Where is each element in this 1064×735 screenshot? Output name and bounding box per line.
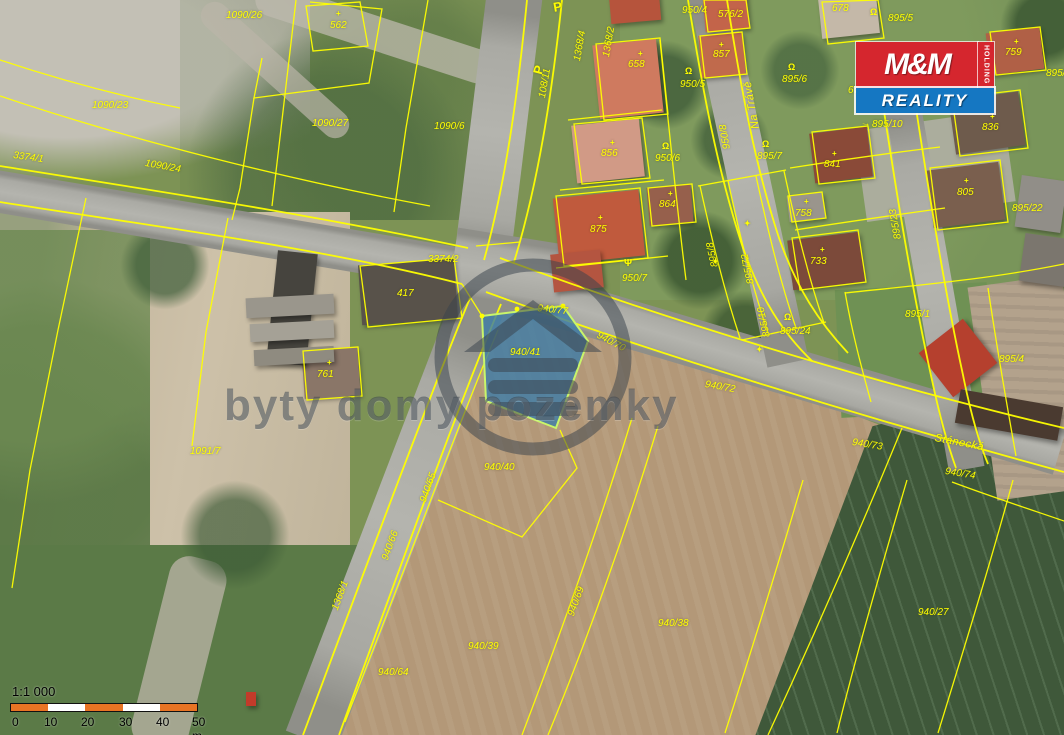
logo-reality-bar: REALITY: [856, 88, 994, 113]
building-roof: [703, 0, 750, 32]
red-shed: [246, 692, 256, 706]
mm-reality-logo: M&M HOLDING REALITY: [856, 42, 996, 114]
scale-tick-label: 30: [119, 715, 132, 729]
scale-bar: 1:1 000 01020304050 m: [8, 684, 218, 730]
scale-tick-label: 0: [12, 715, 19, 729]
scale-tick-label: 20: [81, 715, 94, 729]
logo-reality-text: REALITY: [882, 91, 969, 111]
building-roof: [646, 184, 693, 226]
building-roof: [809, 127, 873, 184]
logo-mm-text: M&M: [884, 48, 950, 82]
building-roof: [571, 119, 645, 184]
logo-holding-strip: HOLDING: [978, 42, 994, 88]
watermark-text: byty domy pozemky: [224, 381, 679, 431]
building-roof: [787, 192, 826, 222]
building-roof: [550, 249, 604, 292]
scale-tick-label: 50 m: [192, 715, 218, 735]
map-symbol: P: [552, 0, 563, 15]
terrain-tree: [180, 480, 290, 590]
cadastral-map: 1090/265621090/231090/271090/63374/11090…: [0, 0, 1064, 735]
scale-tick-label: 10: [44, 715, 57, 729]
scale-tick-label: 40: [156, 715, 169, 729]
parcel-label: 1368/4: [572, 30, 588, 62]
scale-segments: [10, 703, 198, 712]
building-warehouse: [358, 259, 458, 326]
parcel-label: 108/11: [537, 68, 553, 99]
building-roof: [698, 32, 745, 78]
scale-ratio: 1:1 000: [12, 684, 55, 699]
building-roof: [1019, 233, 1064, 287]
building-roof: [592, 39, 663, 119]
scale-ticks: 01020304050 m: [8, 715, 218, 729]
terrain-tree: [760, 30, 840, 110]
building-roof: [1015, 175, 1064, 233]
building-roof: [787, 232, 865, 290]
logo-mm-box: M&M: [856, 42, 978, 88]
building-roof: [927, 162, 1006, 228]
building-roof: [818, 0, 880, 39]
